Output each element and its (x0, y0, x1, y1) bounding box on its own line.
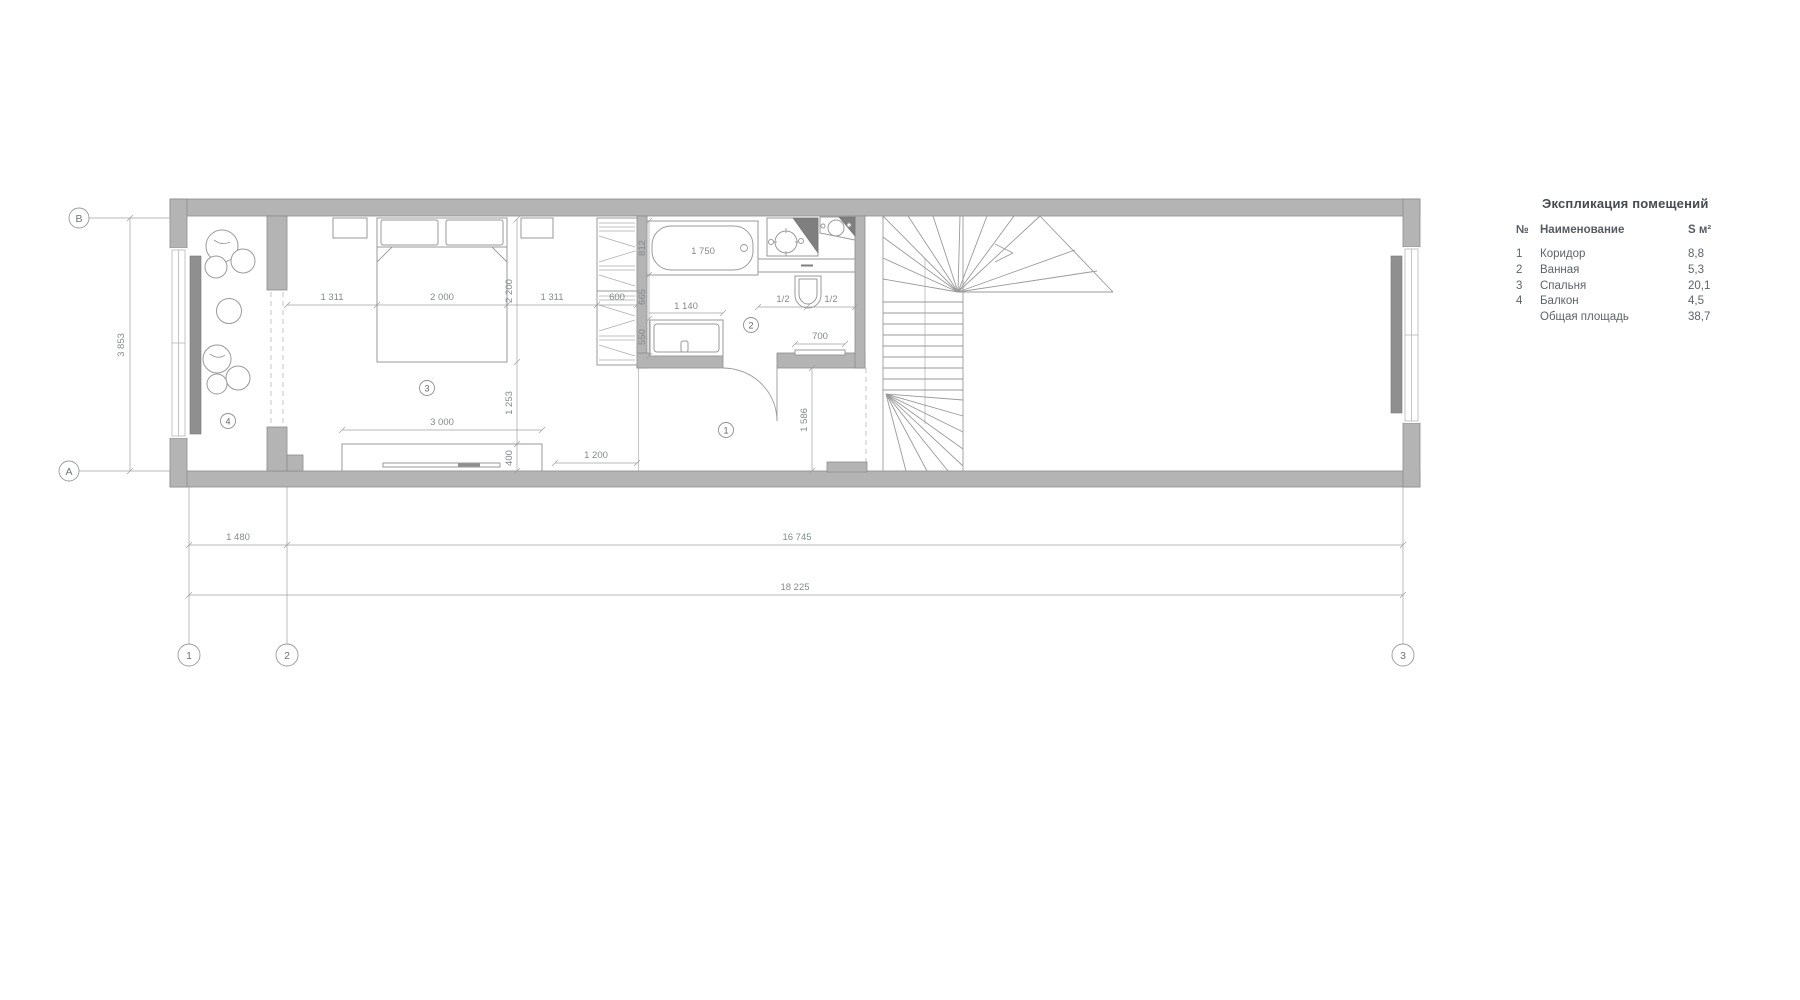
legend-col-num: № (1516, 224, 1540, 236)
washing-machine (650, 320, 723, 356)
plant-icon (203, 345, 250, 394)
dim-console-width: 3 000 (430, 417, 454, 428)
room-label-corridor: 1 (723, 426, 728, 436)
room-name: Балкон (1540, 294, 1688, 310)
dim-tub-gap: 665 (637, 289, 648, 305)
dim-wc-half-right: 1/2 (824, 294, 837, 305)
dim-tub-width: 812 (637, 240, 648, 256)
dim-passage: 1 200 (584, 450, 608, 461)
room-number: 3 (1516, 279, 1540, 295)
legend-title: Экспликация помещений (1542, 196, 1722, 211)
legend-row: 4 Балкон 4,5 (1516, 294, 1722, 310)
dim-tub-length: 1 750 (691, 246, 715, 257)
total-num (1516, 310, 1540, 326)
dim-hall-depth: 1 586 (799, 408, 810, 432)
room-name: Спальня (1540, 279, 1688, 295)
vanity-sink (767, 218, 818, 256)
towel-rail (795, 350, 845, 355)
room-number: 1 (1516, 247, 1540, 263)
dim-bed-to-console: 1 253 (504, 391, 515, 415)
vanity-shelf (758, 259, 855, 272)
dim-grid-13: 18 225 (780, 582, 809, 593)
grid-and-exterior-dims: 3 853 1 480 16 745 18 225 В А 1 2 3 (59, 208, 1414, 666)
dim-wardrobe-width: 600 (609, 292, 625, 303)
axis-label-a: А (65, 466, 72, 478)
room-name: Ванная (1540, 263, 1688, 279)
room-area: 8,8 (1688, 247, 1722, 263)
total-area: 38,7 (1688, 310, 1722, 326)
room-schedule: Экспликация помещений № Наименование S м… (1516, 196, 1722, 326)
legend-row: 1 Коридор 8,8 (1516, 247, 1722, 263)
dim-bed-right: 1 311 (540, 292, 563, 303)
legend-total-row: Общая площадь 38,7 (1516, 310, 1722, 326)
total-name: Общая площадь (1540, 310, 1688, 326)
dim-grid-23: 16 745 (782, 532, 811, 543)
dim-towel-rail: 700 (812, 331, 828, 342)
dim-wc-half-left: 1/2 (776, 294, 789, 305)
room-number: 4 (1516, 294, 1540, 310)
balcony-door-dashed (271, 292, 283, 427)
room-area: 4,5 (1688, 294, 1722, 310)
bed (333, 218, 553, 362)
plant-icon (205, 230, 255, 278)
dim-grid-12: 1 480 (226, 532, 250, 543)
room-number: 2 (1516, 263, 1540, 279)
floor-plan: 1 311 2 000 1 311 600 2 200 1 253 400 3 … (0, 0, 1800, 1000)
dim-console-depth: 400 (504, 450, 515, 466)
legend-row: 2 Ванная 5,3 (1516, 263, 1722, 279)
legend-header: № Наименование S м² (1516, 224, 1722, 236)
room-name: Коридор (1540, 247, 1688, 263)
room-label-bedroom: 3 (424, 384, 429, 394)
balcony-window (170, 248, 201, 438)
legend-row: 3 Спальня 20,1 (1516, 279, 1722, 295)
dim-axis-ab: 3 853 (116, 333, 127, 357)
legend-col-name: Наименование (1540, 224, 1688, 236)
grid-label-1: 1 (186, 650, 192, 662)
staircase (883, 216, 1113, 471)
room-label-bathroom: 2 (748, 321, 753, 331)
room-area: 20,1 (1688, 279, 1722, 295)
dim-washer-width: 1 140 (674, 301, 698, 312)
room-label-balcony: 4 (225, 417, 230, 427)
corner-sink (820, 217, 855, 240)
grid-label-2: 2 (284, 650, 290, 662)
dim-washer-depth: 550 (637, 329, 648, 345)
legend-col-area: S м² (1688, 224, 1722, 236)
dim-bed-width: 2 000 (430, 292, 454, 303)
axis-label-b: В (75, 213, 82, 225)
dim-bed-length: 2 200 (504, 279, 515, 303)
room-area: 5,3 (1688, 263, 1722, 279)
grid-label-3: 3 (1400, 650, 1406, 662)
toilet (795, 276, 821, 308)
end-window (1391, 247, 1420, 423)
dim-bed-left: 1 311 (320, 292, 343, 303)
pot-icon (217, 299, 242, 324)
bathroom-door (723, 368, 777, 421)
